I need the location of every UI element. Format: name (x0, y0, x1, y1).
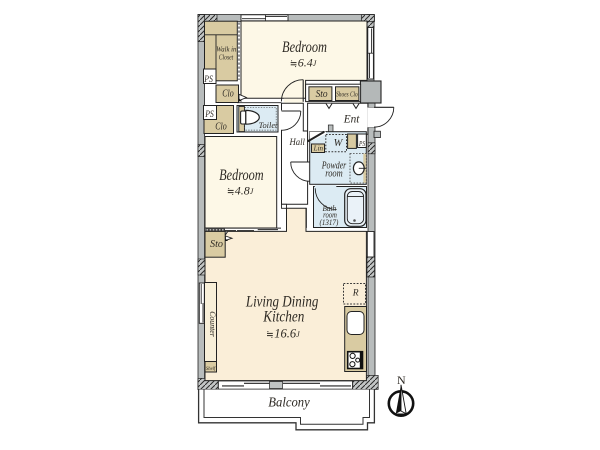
svg-text:PS: PS (203, 74, 213, 84)
svg-text:Ent: Ent (343, 114, 360, 126)
svg-text:Bedroom: Bedroom (219, 167, 264, 184)
svg-text:Bedroom: Bedroom (282, 39, 327, 56)
svg-text:Clo: Clo (222, 88, 234, 100)
svg-text:room: room (325, 168, 343, 179)
svg-text:Shoes Clo: Shoes Clo (336, 91, 358, 99)
svg-text:(1317): (1317) (320, 217, 339, 227)
svg-text:R: R (352, 289, 359, 299)
svg-text:Hall: Hall (289, 138, 306, 148)
svg-text:Toilet: Toilet (259, 120, 278, 130)
svg-text:W: W (334, 138, 344, 149)
svg-text:PS: PS (204, 109, 214, 119)
svg-text:Closet: Closet (219, 52, 234, 61)
svg-text:Lin: Lin (313, 144, 324, 152)
svg-text:Balcony: Balcony (268, 394, 309, 409)
svg-text:Counter: Counter (208, 311, 217, 337)
svg-text:Sto: Sto (210, 238, 223, 250)
svg-text:Shelf: Shelf (206, 365, 216, 372)
svg-text:Kitchen: Kitchen (262, 308, 304, 325)
svg-text:PS: PS (358, 141, 366, 148)
svg-text:Clo: Clo (215, 121, 227, 133)
svg-text:Sto: Sto (316, 88, 328, 100)
